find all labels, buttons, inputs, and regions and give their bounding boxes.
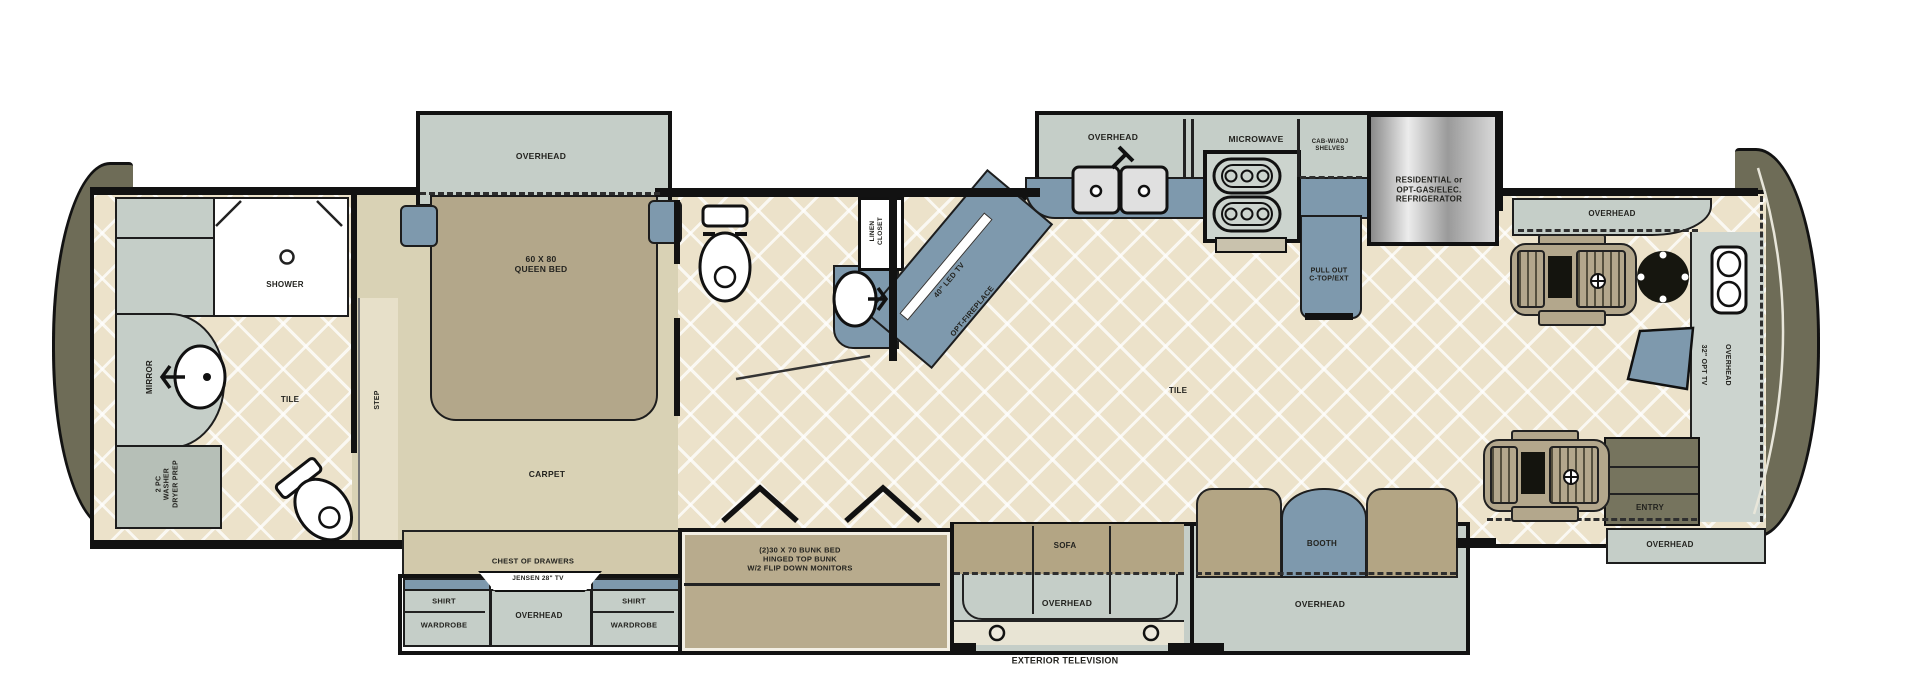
front-overhead-dashline: [1518, 229, 1698, 232]
label-sofa: SOFA: [1054, 541, 1077, 551]
seat-armrest: [1511, 506, 1579, 522]
label-entry: ENTRY: [1636, 503, 1664, 513]
cab-shelves-dashline: [1300, 176, 1362, 179]
seat-body: [1483, 439, 1610, 512]
seat-back: [1517, 250, 1545, 308]
label-exterior-tv: EXTERIOR TELEVISION: [1012, 656, 1119, 667]
seat-cushion: [1549, 446, 1599, 504]
slide-mark-right: [1168, 643, 1224, 652]
wall-bath-left-upper: [674, 200, 680, 264]
wardrobe-divider-right: [593, 611, 674, 613]
wall-top-mid: [655, 188, 1040, 197]
booth-slide-dashline: [1196, 572, 1456, 575]
wardrobe-divider-left: [405, 611, 485, 613]
step-strip: [358, 298, 398, 543]
windshield-dashline: [1760, 196, 1763, 522]
label-step: STEP: [374, 390, 382, 409]
seat-cushion-dark: [1548, 256, 1572, 298]
label-microwave: MICROWAVE: [1229, 134, 1284, 144]
cabinet-divider-2: [1191, 119, 1194, 177]
slide-mark-left: [950, 643, 976, 652]
label-wardrobe-left: WARDROBE: [421, 621, 468, 630]
label-bunk-bed: (2)30 X 70 BUNK BED HINGED TOP BUNK W/2 …: [747, 546, 852, 573]
wall-bath-right: [889, 196, 897, 361]
seat-cushion: [1576, 250, 1626, 308]
entry-step-line: [1606, 466, 1698, 468]
label-carpet: CARPET: [529, 469, 565, 479]
chest-of-drawers: [402, 530, 682, 578]
label-chest: CHEST OF DRAWERS: [492, 557, 574, 566]
label-booth-overhead: OVERHEAD: [1295, 599, 1345, 609]
label-queen-bed: 60 X 80 QUEEN BED: [515, 254, 568, 274]
label-jensen-tv: JENSEN 28" TV: [512, 575, 564, 583]
label-front-overhead: OVERHEAD: [1588, 209, 1635, 219]
sofa-base-strip: [954, 620, 1184, 645]
seat-back: [1490, 446, 1518, 504]
shower-stall: [213, 197, 349, 317]
sofa-divider-1: [1032, 526, 1034, 614]
nightstand-left: [400, 205, 438, 247]
label-bedroom-overhead-bottom: OVERHEAD: [515, 611, 562, 621]
label-washer-prep: 2 PC WASHER DRYER PREP: [155, 460, 180, 508]
label-refrigerator: RESIDENTIAL or OPT-GAS/ELEC. REFRIGERATO…: [1396, 176, 1463, 205]
sofa-divider-2: [1109, 526, 1111, 614]
queen-bed: [430, 195, 658, 421]
label-cab-shelves: CAB-W/ADJ SHELVES: [1312, 139, 1349, 153]
bunk-divider: [684, 583, 940, 586]
entry-step-line: [1606, 493, 1698, 495]
microwave-cooktop: [1203, 150, 1301, 243]
sofa-slide-dashline: [954, 572, 1184, 575]
label-sofa-overhead: OVERHEAD: [1042, 598, 1092, 608]
label-wardrobe-right: WARDROBE: [611, 621, 658, 630]
wall-bottom-rear: [90, 540, 402, 549]
rear-cabinet-top: [115, 197, 217, 241]
label-front-overhead-side: OVERHEAD: [1723, 344, 1731, 386]
booth-table: [1281, 488, 1367, 578]
label-booth: BOOTH: [1307, 539, 1337, 549]
rear-vanity: [115, 313, 225, 449]
rv-floorplan: SHOWER MIRROR TILE 2 PC WASHER DRYER PRE…: [0, 0, 1920, 674]
label-kitchen-overhead: OVERHEAD: [1088, 132, 1138, 142]
seat-cushion-dark: [1521, 452, 1545, 494]
cooktop-drawer: [1215, 237, 1287, 253]
label-tile-main: TILE: [1169, 386, 1187, 396]
label-linen-closet: LINEN CLOSET: [869, 217, 885, 245]
seat-body: [1510, 243, 1637, 316]
cabinet-divider-1: [1183, 119, 1186, 177]
pullout-base: [1305, 313, 1353, 320]
seat-armrest: [1538, 310, 1606, 326]
label-mirror: MIRROR: [145, 360, 155, 394]
bed-slide-dashline: [420, 192, 660, 195]
driver-seat: [1510, 234, 1638, 326]
passenger-seat: [1483, 430, 1611, 522]
wall-bath-bedroom: [351, 193, 357, 453]
cab-shelves-divider: [1297, 119, 1300, 177]
label-shower: SHOWER: [266, 280, 304, 290]
label-bedroom-overhead: OVERHEAD: [516, 151, 566, 161]
label-entry-overhead: OVERHEAD: [1646, 540, 1693, 550]
booth-bench-left: [1196, 488, 1282, 578]
label-pull-out: PULL OUT C-TOP/EXT: [1309, 268, 1348, 285]
label-shirt-left: SHIRT: [432, 597, 456, 606]
rear-cabinet-mid: [115, 237, 217, 317]
wall-bath-left-lower: [674, 318, 680, 416]
kitchen-counter: [1025, 177, 1379, 219]
label-tile-rear: TILE: [281, 395, 299, 405]
wall-top-front: [1491, 188, 1758, 196]
label-opt-tv: 32" OPT TV: [1699, 345, 1707, 386]
booth-bench-right: [1366, 488, 1458, 578]
label-shirt-right: SHIRT: [622, 597, 646, 606]
wall-top-rear: [90, 187, 420, 195]
wall-bottom-front: [1456, 538, 1496, 548]
